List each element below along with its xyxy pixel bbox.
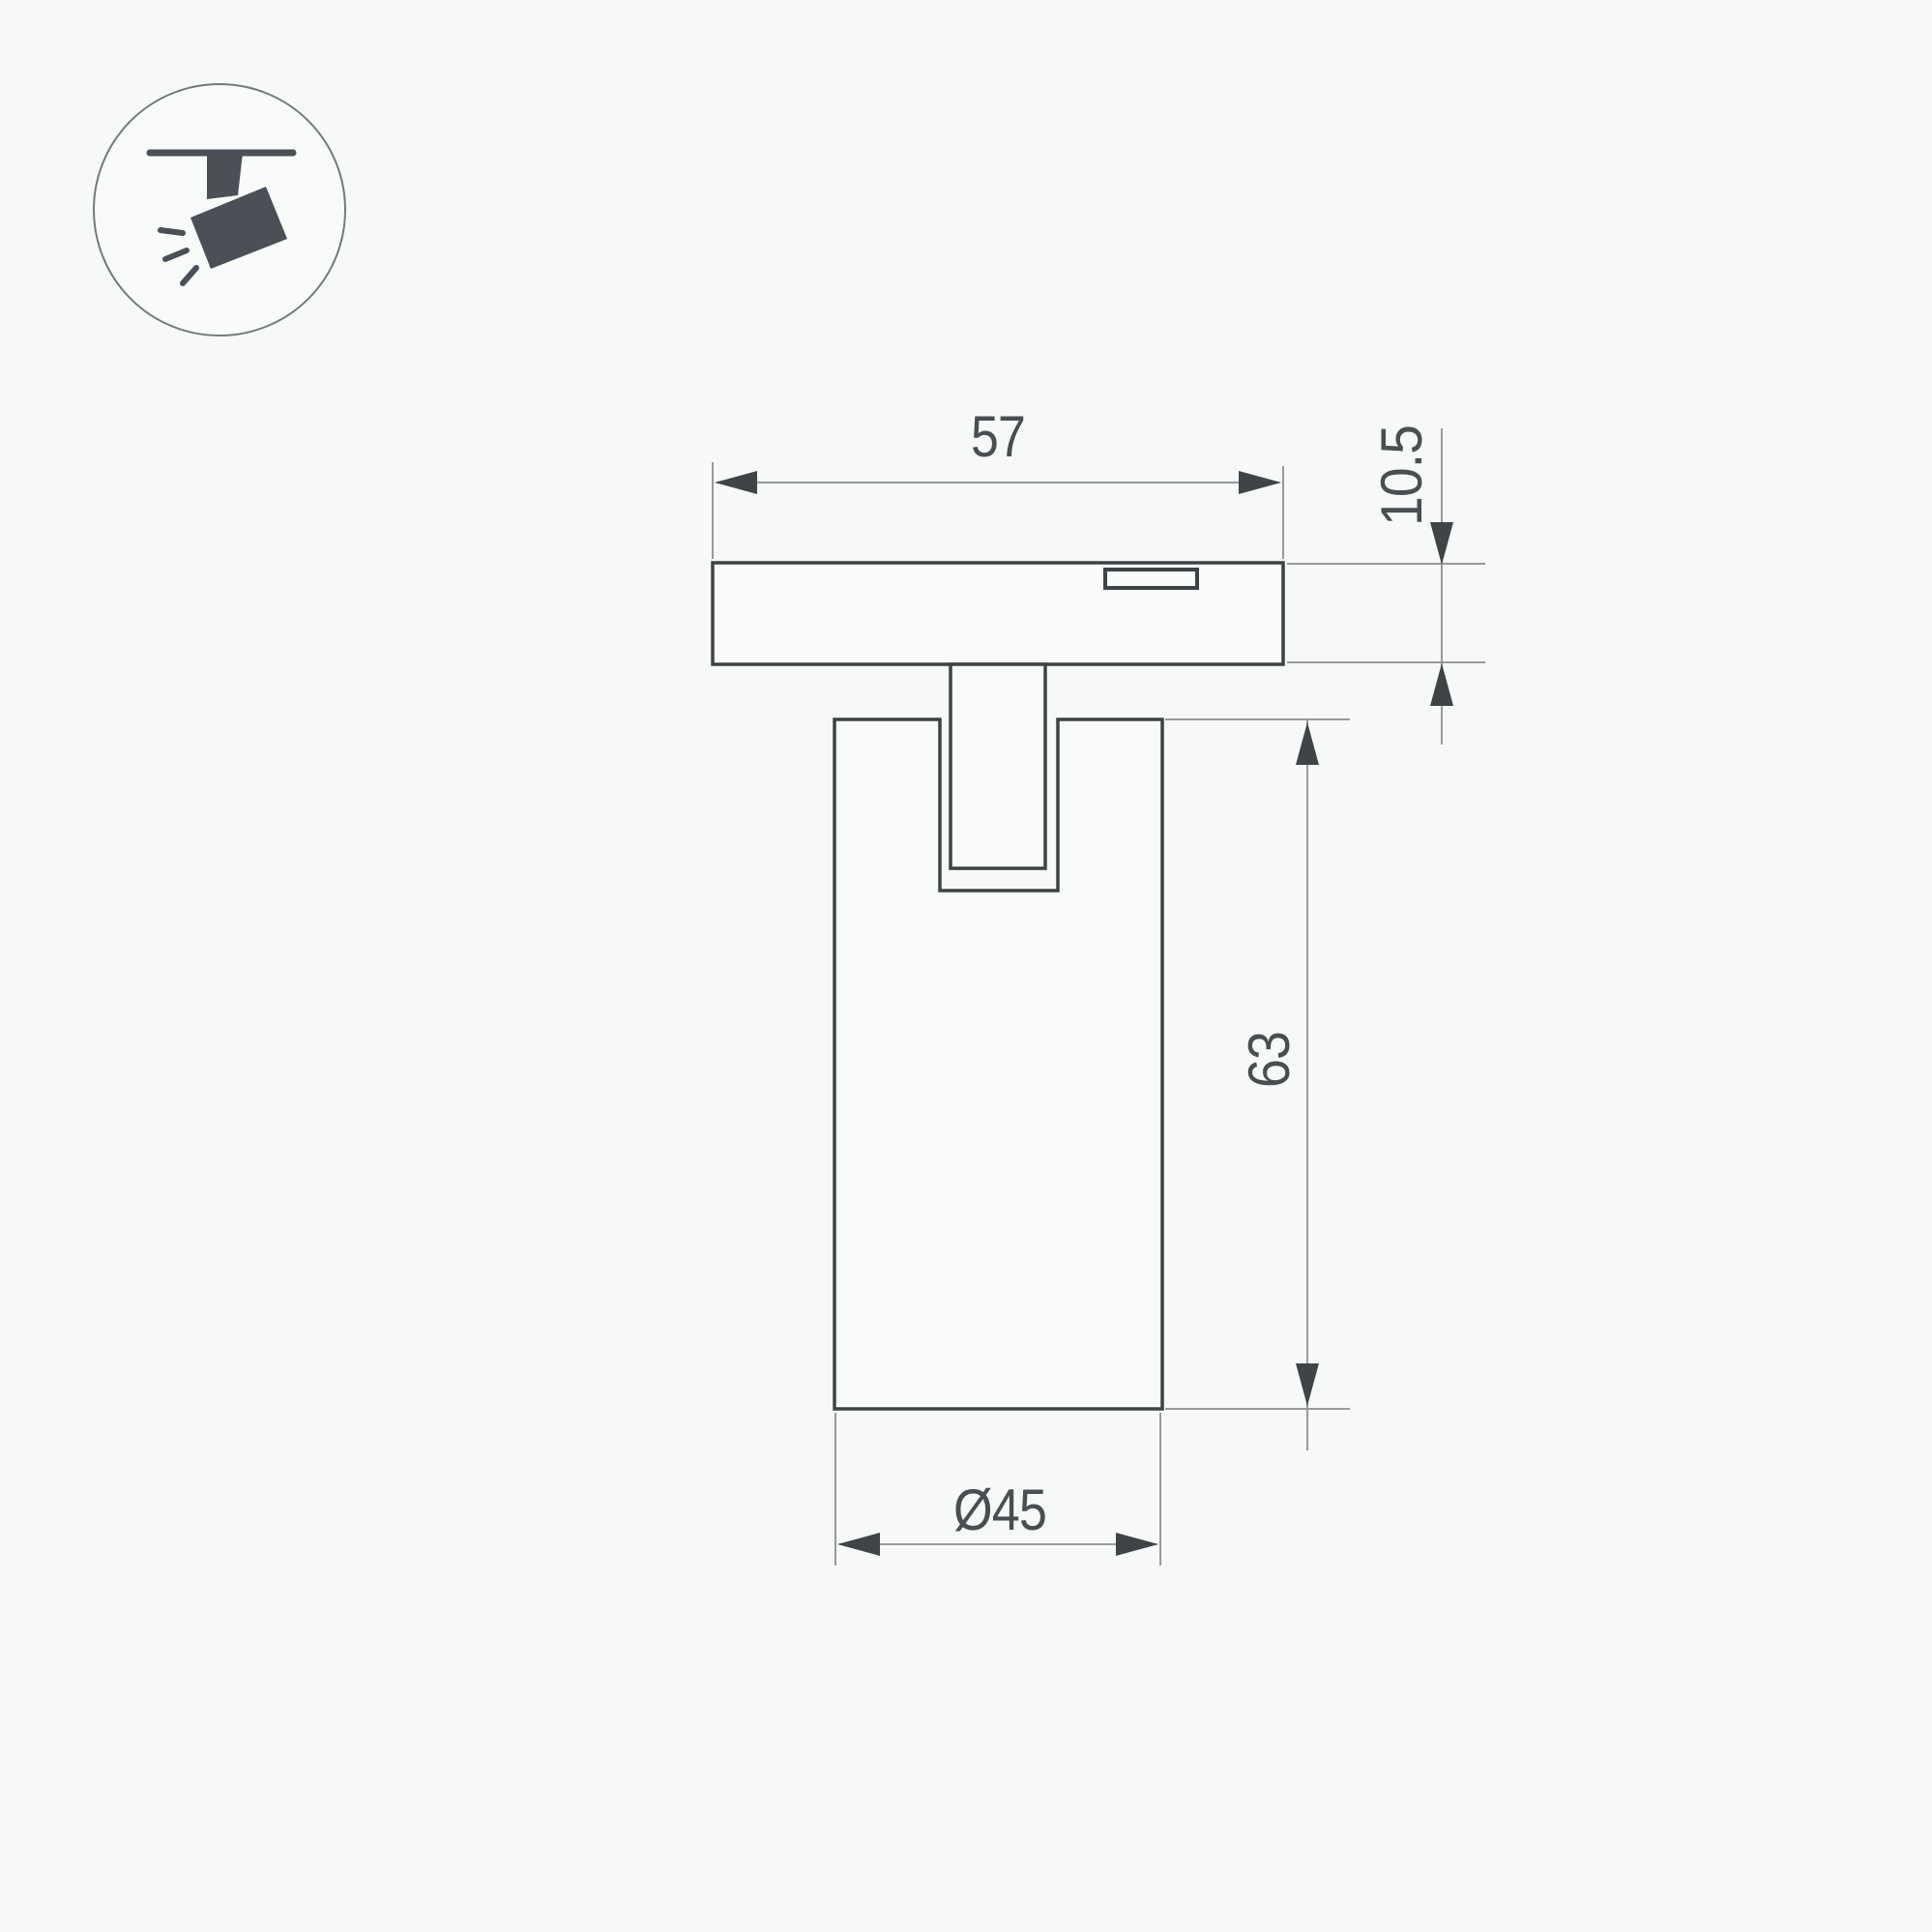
dim-label-body-height: 63 bbox=[1237, 1032, 1302, 1088]
arrowhead-up-icon bbox=[1296, 722, 1319, 765]
arrowhead-left-icon bbox=[837, 1533, 880, 1556]
track-spotlight-icon bbox=[94, 84, 345, 336]
dim-label-body-diameter: Ø45 bbox=[953, 1478, 1046, 1542]
dim-label-plate-height: 10.5 bbox=[1369, 425, 1434, 526]
dimension-plate-height: 10.5 bbox=[1287, 425, 1485, 745]
page: 57 10.5 63 bbox=[0, 0, 1932, 1932]
arrowhead-down-icon bbox=[1430, 522, 1453, 565]
dimension-body-height: 63 bbox=[1165, 719, 1350, 1450]
fixture-drawing bbox=[713, 563, 1283, 1409]
arrowhead-left-icon bbox=[715, 471, 757, 494]
technical-drawing: 57 10.5 63 bbox=[0, 0, 1932, 1932]
plate-slot bbox=[1105, 570, 1197, 588]
icon-mount-stem bbox=[207, 153, 243, 199]
dimension-plate-width: 57 bbox=[713, 404, 1283, 559]
dim-label-plate-width: 57 bbox=[971, 404, 1025, 469]
dimension-body-diameter: Ø45 bbox=[835, 1413, 1160, 1566]
arrowhead-up-icon bbox=[1430, 663, 1453, 706]
arrowhead-right-icon bbox=[1116, 1533, 1158, 1556]
arrowhead-down-icon bbox=[1296, 1363, 1319, 1406]
mount-stem bbox=[951, 664, 1045, 868]
light-ray-icon bbox=[161, 230, 183, 233]
arrowhead-right-icon bbox=[1239, 471, 1281, 494]
